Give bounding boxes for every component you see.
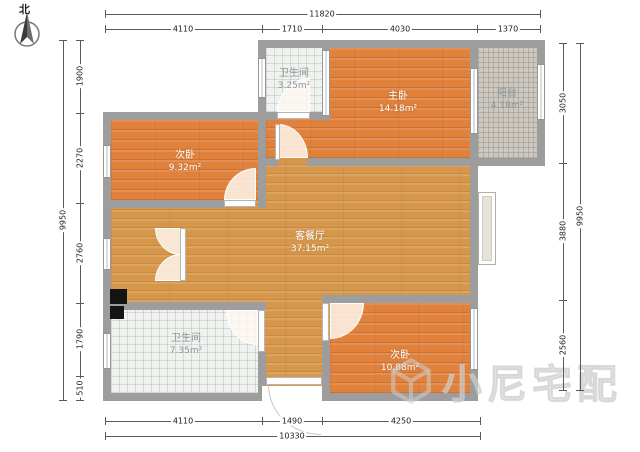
tick bbox=[105, 432, 106, 440]
door-leaf-bedroom-left bbox=[224, 200, 256, 207]
tick bbox=[540, 10, 541, 18]
window-balcony-right bbox=[537, 64, 545, 120]
window-bathroom-bottom bbox=[103, 333, 111, 369]
watermark: 小尼宅配 bbox=[388, 352, 622, 410]
tick bbox=[76, 40, 84, 41]
pillar-top bbox=[110, 289, 127, 304]
room-label-master: 主卧14.18m² bbox=[379, 91, 417, 115]
tick bbox=[480, 432, 481, 440]
tick bbox=[559, 163, 567, 164]
tick bbox=[576, 43, 584, 44]
compass-icon bbox=[8, 10, 46, 50]
tick bbox=[262, 25, 263, 33]
dim-right-0: 3050 bbox=[559, 91, 568, 115]
wall-master-bottom-b bbox=[307, 158, 470, 166]
wall-bedroom-left-bottom bbox=[103, 200, 224, 208]
tick bbox=[105, 10, 106, 18]
dim-top-total: 11820 bbox=[307, 10, 336, 19]
floorplan: 卫生间3.25m² 主卧14.18m² 阳台4.18m² 次卧9.32m² 客餐… bbox=[0, 0, 640, 452]
tick bbox=[262, 417, 263, 425]
door-leaf-bathroom-bottom bbox=[258, 310, 265, 352]
tick bbox=[76, 303, 84, 304]
door-leaf-bathroom-top bbox=[277, 112, 310, 119]
dim-left-total: 9950 bbox=[59, 208, 68, 232]
tick bbox=[322, 417, 323, 425]
room-label-bathroom-top: 卫生间3.25m² bbox=[278, 68, 310, 92]
tick bbox=[76, 376, 84, 377]
tick bbox=[76, 203, 84, 204]
tick bbox=[559, 390, 567, 391]
window-living-left bbox=[103, 238, 111, 270]
tick bbox=[540, 25, 541, 33]
room-label-bedroom-left: 次卧9.32m² bbox=[169, 150, 201, 174]
dim-left-0: 1900 bbox=[76, 64, 85, 88]
bay-window-living bbox=[478, 192, 496, 265]
watermark-cube-icon bbox=[388, 357, 434, 405]
wall-bottom-a bbox=[103, 393, 262, 401]
window-master-balcony bbox=[470, 68, 478, 134]
dim-bottom-total: 10330 bbox=[277, 432, 306, 441]
wall-top bbox=[258, 40, 545, 48]
window-bedroom-left bbox=[103, 145, 111, 178]
entrance-door-arc bbox=[268, 385, 321, 435]
pillar-bottom bbox=[110, 306, 124, 319]
wall-bathroom-bottom-right-a bbox=[258, 302, 266, 310]
dim-left-4: 510 bbox=[76, 378, 85, 397]
dim-top-2: 4030 bbox=[388, 25, 412, 34]
dim-bottom-2: 4250 bbox=[389, 417, 413, 426]
dim-right-1: 3880 bbox=[559, 219, 568, 243]
tick bbox=[59, 40, 67, 41]
dim-left-1: 2270 bbox=[76, 146, 85, 170]
window-bathroom-top bbox=[258, 58, 266, 98]
tick bbox=[576, 390, 584, 391]
dim-right-2: 2560 bbox=[559, 333, 568, 357]
dim-left-2: 2760 bbox=[76, 241, 85, 265]
dim-top-1: 1710 bbox=[280, 25, 304, 34]
wall-bedroom-bottom-top bbox=[322, 295, 478, 303]
watermark-text: 小尼宅配 bbox=[442, 352, 622, 410]
dim-top-0: 4110 bbox=[171, 25, 195, 34]
room-label-bathroom-bottom: 卫生间7.35m² bbox=[170, 333, 202, 357]
room-label-balcony: 阳台4.18m² bbox=[491, 88, 523, 112]
tick bbox=[559, 43, 567, 44]
dim-bottom-1: 1490 bbox=[280, 417, 304, 426]
window-bathroom-master bbox=[322, 50, 330, 116]
dim-top-3: 1370 bbox=[496, 25, 520, 34]
room-label-living: 客餐厅37.15m² bbox=[291, 231, 329, 255]
entrance-door-leaf bbox=[266, 377, 322, 385]
door-leaf-master bbox=[275, 124, 280, 160]
wall-bathroom-bottom-top bbox=[110, 302, 266, 310]
double-door-jamb bbox=[180, 228, 186, 281]
tick bbox=[559, 300, 567, 301]
tick bbox=[105, 417, 106, 425]
tick bbox=[76, 400, 84, 401]
wall-bedroom-bottom-left bbox=[322, 340, 330, 401]
wall-bedroom-left-top bbox=[103, 112, 266, 120]
bay-window-sill bbox=[482, 196, 492, 261]
tick bbox=[322, 25, 323, 33]
door-leaf-bedroom-bottom bbox=[322, 303, 329, 341]
dim-bottom-0: 4110 bbox=[171, 417, 195, 426]
tick bbox=[480, 417, 481, 425]
wall-bedroom-left-right bbox=[258, 112, 266, 208]
dim-left-3: 1790 bbox=[76, 327, 85, 351]
tick bbox=[105, 25, 106, 33]
tick bbox=[59, 400, 67, 401]
tick bbox=[76, 113, 84, 114]
wall-balcony-bottom bbox=[470, 158, 545, 166]
tick bbox=[477, 25, 478, 33]
dim-right-total: 9950 bbox=[576, 204, 585, 228]
